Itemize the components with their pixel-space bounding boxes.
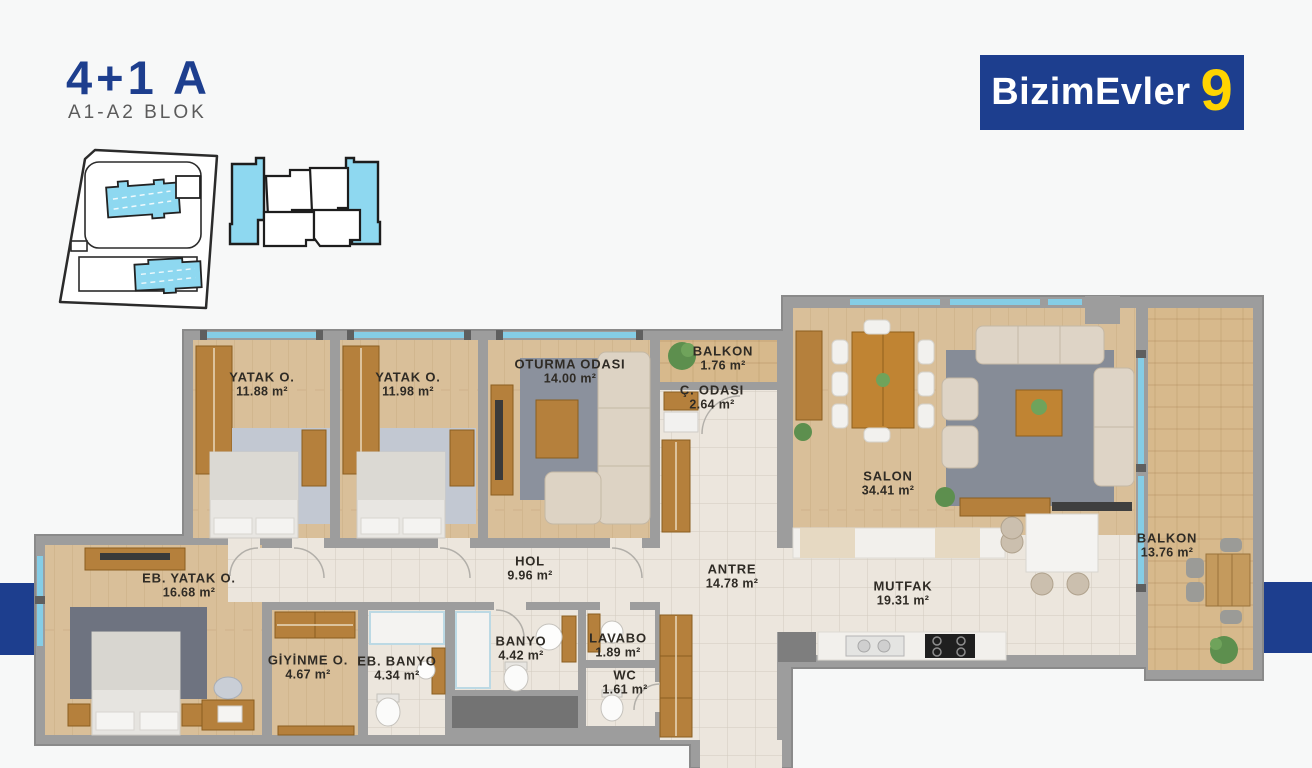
room-label-mutfak: MUTFAK 19.31 m² (874, 579, 933, 608)
room-label-oturma-odasi: OTURMA ODASI 14.00 m² (515, 357, 626, 386)
room-label-salon: SALON 34.41 m² (862, 469, 914, 498)
door-gap-lavabo (600, 602, 630, 610)
plant-balkon1 (668, 342, 696, 370)
wall-step (1085, 296, 1120, 324)
room-label-balkon-2: BALKON 13.76 m² (1137, 531, 1197, 560)
room-label-balkon-1: BALKON 1.76 m² (693, 344, 753, 373)
room-label-c-odasi: Ç. ODASI 2.64 m² (680, 383, 744, 412)
antre-lower-floor (700, 740, 782, 768)
room-label-eb-banyo: EB. BANYO 4.34 m² (357, 654, 436, 683)
room-hol-floor (228, 548, 660, 602)
room-label-hol: HOL 9.96 m² (507, 554, 552, 583)
room-label-lavabo: LAVABO 1.89 m² (589, 631, 647, 660)
room-label-wc: WC 1.61 m² (602, 668, 647, 697)
room-label-yatak-1: YATAK O. 11.88 m² (229, 370, 294, 399)
door-gap-yatak1 (292, 538, 324, 548)
room-label-giyinme: GİYİNME O. 4.67 m² (268, 653, 348, 682)
room-label-antre: ANTRE 14.78 m² (706, 562, 758, 591)
antre-kitchen-opening (777, 548, 793, 632)
door-gap-wc (655, 682, 660, 712)
door-gap-codasi (700, 426, 740, 434)
wall-column (778, 632, 816, 662)
room-label-banyo: BANYO 4.42 m² (496, 634, 547, 663)
floor-plan (0, 0, 1312, 768)
floorplan-page: 4+1 A A1-A2 BLOK BizimEvler 9 (0, 0, 1312, 768)
shaft (452, 696, 578, 728)
door-gap-banyo (494, 602, 526, 610)
door-gap-yatak2 (438, 538, 470, 548)
room-label-eb-yatak: EB. YATAK O. 16.68 m² (142, 571, 236, 600)
door-gap-oturma (610, 538, 642, 548)
room-label-yatak-2: YATAK O. 11.98 m² (375, 370, 440, 399)
